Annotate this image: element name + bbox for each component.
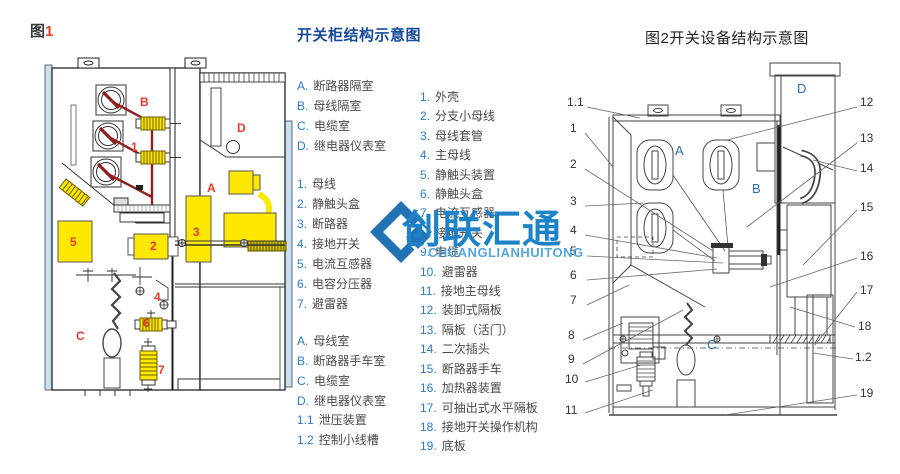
fig2-zone-B: B	[752, 181, 761, 196]
legend-item-text: 母线室	[313, 334, 349, 348]
legend1-group-rooms: A.母线室B.断路器手车室C.电缆室D.继电器仪表室	[297, 331, 386, 411]
legend-item: 12.装卸式隔板	[420, 301, 570, 320]
legend-item-text: 可抽出式水平隔板	[442, 401, 538, 415]
legend-item-text: 母线套管	[435, 129, 483, 143]
legend-item: C.电缆室	[297, 116, 386, 136]
legend-item-key: 1.	[297, 177, 307, 191]
legend-item-key: 13.	[420, 323, 437, 337]
fig1-label-5: 5	[70, 235, 77, 249]
legend-item-key: 6.	[297, 277, 307, 291]
legend-item: 11.接地主母线	[420, 282, 570, 301]
legend-item-text: 断路器隔室	[313, 79, 373, 93]
legend-item-text: 电流互感器	[312, 257, 372, 271]
legend-item-key: 15.	[420, 362, 437, 376]
legend-item: D.继电器仪表室	[297, 391, 386, 411]
legend-item: 17.可抽出式水平隔板	[420, 399, 570, 418]
legend-item-text: 继电器仪表室	[314, 139, 386, 153]
legend-item-text: 分支小母线	[435, 109, 495, 123]
legend-item-key: 16.	[420, 381, 437, 395]
legend-item-key: C.	[297, 374, 309, 388]
legend-item-key: 2.	[297, 197, 307, 211]
legend1-group-extras: 1.1泄压装置1.2控制小线槽	[297, 410, 379, 450]
legend-item-text: 底板	[442, 439, 466, 453]
legend-item: 16.加热器装置	[420, 379, 570, 398]
fig2-callout-7: 7	[570, 293, 577, 307]
legend-item: 1.外壳	[420, 88, 570, 107]
legend-item: D.继电器仪表室	[297, 136, 386, 156]
fig2-callout-1-2: 1.2	[855, 350, 872, 364]
fig1-label-6: 6	[143, 316, 150, 330]
fig2-callout-16: 16	[860, 249, 873, 263]
fig2-callout-12: 12	[860, 95, 873, 109]
fig1-label-1: 1	[131, 140, 138, 154]
fig1-label-3: 3	[193, 225, 200, 239]
legend-item: 19.底板	[420, 437, 570, 456]
fig1-label-A: A	[207, 181, 216, 195]
legend-item-key: D.	[297, 394, 309, 408]
legend-item-text: 电容分压器	[312, 277, 372, 291]
legend-item-text: 断路器手车室	[313, 354, 385, 368]
legend-item-key: 12.	[420, 303, 437, 317]
legend-item-key: B.	[297, 354, 308, 368]
legend-item-key: 11.	[420, 284, 436, 298]
legend-item-text: 静触头盒	[312, 197, 360, 211]
legend-item-key: 3.	[297, 217, 307, 231]
fig1-label-D: D	[237, 121, 246, 135]
legend-item: 14.二次插头	[420, 340, 570, 359]
legend-item-text: 接地开关	[312, 237, 360, 251]
legend-item: 3.断路器	[297, 214, 372, 234]
legend-item-text: 隔板（活门）	[442, 323, 514, 337]
fig2-callout-15: 15	[860, 200, 873, 214]
legend-item: 1.母线	[297, 174, 372, 194]
legend-item: 2.分支小母线	[420, 107, 570, 126]
legend-item: 4.接地开关	[297, 234, 372, 254]
legend-item-key: 19.	[420, 439, 437, 453]
fig2-zone-D: D	[797, 81, 806, 96]
legend-item-key: 4.	[297, 237, 307, 251]
fig2-callout-1-1: 1.1	[567, 95, 584, 109]
legend-item: A.母线室	[297, 331, 386, 351]
fig2-callout-10: 10	[565, 372, 578, 386]
legend-item-key: C.	[297, 119, 309, 133]
legend-item-key: 14.	[420, 342, 437, 356]
legend-item-key: 1.1	[297, 413, 314, 427]
legend-item: 6.电容分压器	[297, 274, 372, 294]
legend-item: 13.隔板（活门）	[420, 321, 570, 340]
legend-item-text: 二次插头	[442, 342, 490, 356]
fig2-callout-8: 8	[568, 328, 575, 342]
figure1-switchgear-cutaway: B 1 D A 5 2 3 4 C 6 7	[40, 55, 298, 400]
legend-item-text: 电缆室	[314, 119, 350, 133]
legend-item-text: 装卸式隔板	[442, 303, 502, 317]
figure2-switchgear-drawing: A B C D	[565, 55, 895, 430]
legend-item: 5.静触头装置	[420, 166, 570, 185]
legend-item-text: 继电器仪表室	[314, 394, 386, 408]
fig2-callout-14: 14	[860, 161, 873, 175]
legend-item-text: 母线	[312, 177, 336, 191]
legend-item: 18.接地开关操作机构	[420, 418, 570, 437]
figure1-caption-prefix: 图	[30, 23, 45, 40]
legend-item-text: 断路器手车	[442, 362, 502, 376]
legend-item-text: 主母线	[435, 148, 471, 162]
legend-item-text: 加热器装置	[442, 381, 502, 395]
legend-item-text: 外壳	[435, 90, 459, 104]
legend-item-key: 5.	[297, 257, 307, 271]
figure1-caption-number: 1	[45, 23, 53, 40]
legend-item-key: 18.	[420, 420, 437, 434]
fig2-callout-2: 2	[570, 157, 577, 171]
legend-item-text: 电缆室	[314, 374, 350, 388]
legend-item: 7.避雷器	[297, 294, 372, 314]
legend-item: 3.母线套管	[420, 127, 570, 146]
fig2-callout-6: 6	[570, 268, 577, 282]
legend-item-key: A.	[297, 334, 308, 348]
legend-item: 1.1泄压装置	[297, 410, 379, 430]
legend-item-text: 泄压装置	[319, 413, 367, 427]
legend-item-text: 母线隔室	[313, 99, 361, 113]
watermark-subtext: CHUANGLIANHUITONG	[428, 245, 584, 260]
legend-item-key: A.	[297, 79, 308, 93]
legend-item-key: 17.	[420, 401, 437, 415]
fig2-callout-17: 17	[860, 283, 873, 297]
fig2-callout-13: 13	[860, 131, 873, 145]
fig1-label-C: C	[76, 329, 85, 343]
legend-item-text: 断路器	[312, 217, 348, 231]
legend-item-key: D.	[297, 139, 309, 153]
fig1-label-2: 2	[150, 239, 157, 253]
fig2-callout-19: 19	[860, 386, 873, 400]
legend-item-key: 2.	[420, 109, 430, 123]
legend-item: C.电缆室	[297, 371, 386, 391]
legend-item-key: 7.	[297, 297, 307, 311]
legend-item-key: 1.	[420, 90, 430, 104]
fig2-callout-4: 4	[570, 223, 577, 237]
legend-item: 1.2控制小线槽	[297, 430, 379, 450]
legend-item: B.断路器手车室	[297, 351, 386, 371]
figure2-title: 图2开关设备结构示意图	[645, 27, 809, 48]
fig2-callout-3: 3	[570, 194, 577, 208]
legend-item-key: 3.	[420, 129, 430, 143]
legend-item: 15.断路器手车	[420, 360, 570, 379]
legend-item-text: 接地主母线	[441, 284, 501, 298]
fig1-label-B: B	[140, 95, 149, 109]
fig2-callout-9: 9	[568, 352, 575, 366]
legend-item-text: 控制小线槽	[319, 433, 379, 447]
legend-item-key: B.	[297, 99, 308, 113]
diagram-page: 图1	[0, 0, 900, 474]
fig2-zone-C: C	[707, 337, 716, 352]
legend-item-text: 避雷器	[312, 297, 348, 311]
legend-item: 2.静触头盒	[297, 194, 372, 214]
legend-item: 5.电流互感器	[297, 254, 372, 274]
fig2-callout-1: 1	[570, 121, 577, 135]
legend-item: 4.主母线	[420, 146, 570, 165]
legend1-group-compartments: A.断路器隔室B.母线隔室C.电缆室D.继电器仪表室	[297, 76, 386, 156]
legend1-group-parts: 1.母线2.静触头盒3.断路器4.接地开关5.电流互感器6.电容分压器7.避雷器	[297, 174, 372, 314]
legend-item-text: 接地开关操作机构	[442, 420, 538, 434]
fig2-callout-18: 18	[858, 319, 871, 333]
figure1-drawing	[40, 55, 298, 400]
legend2-list: 1.外壳2.分支小母线3.母线套管4.主母线5.静触头装置6.静触头盒7.电流互…	[420, 88, 570, 457]
figure2-drawing	[565, 55, 895, 430]
fig2-zone-A: A	[675, 143, 684, 158]
legend-item-key: 1.2	[297, 433, 314, 447]
watermark: 创联汇通 CHUANGLIANHUITONG	[370, 197, 570, 269]
legend-item-text: 静触头装置	[435, 168, 495, 182]
fig1-label-4: 4	[154, 290, 161, 304]
figure1-caption: 图1	[30, 20, 53, 41]
legend-item-key: 4.	[420, 148, 430, 162]
fig1-label-7: 7	[158, 363, 165, 377]
legend-item-key: 5.	[420, 168, 430, 182]
legend-item: B.母线隔室	[297, 96, 386, 116]
fig2-callout-11: 11	[565, 403, 577, 417]
legend-item: A.断路器隔室	[297, 76, 386, 96]
